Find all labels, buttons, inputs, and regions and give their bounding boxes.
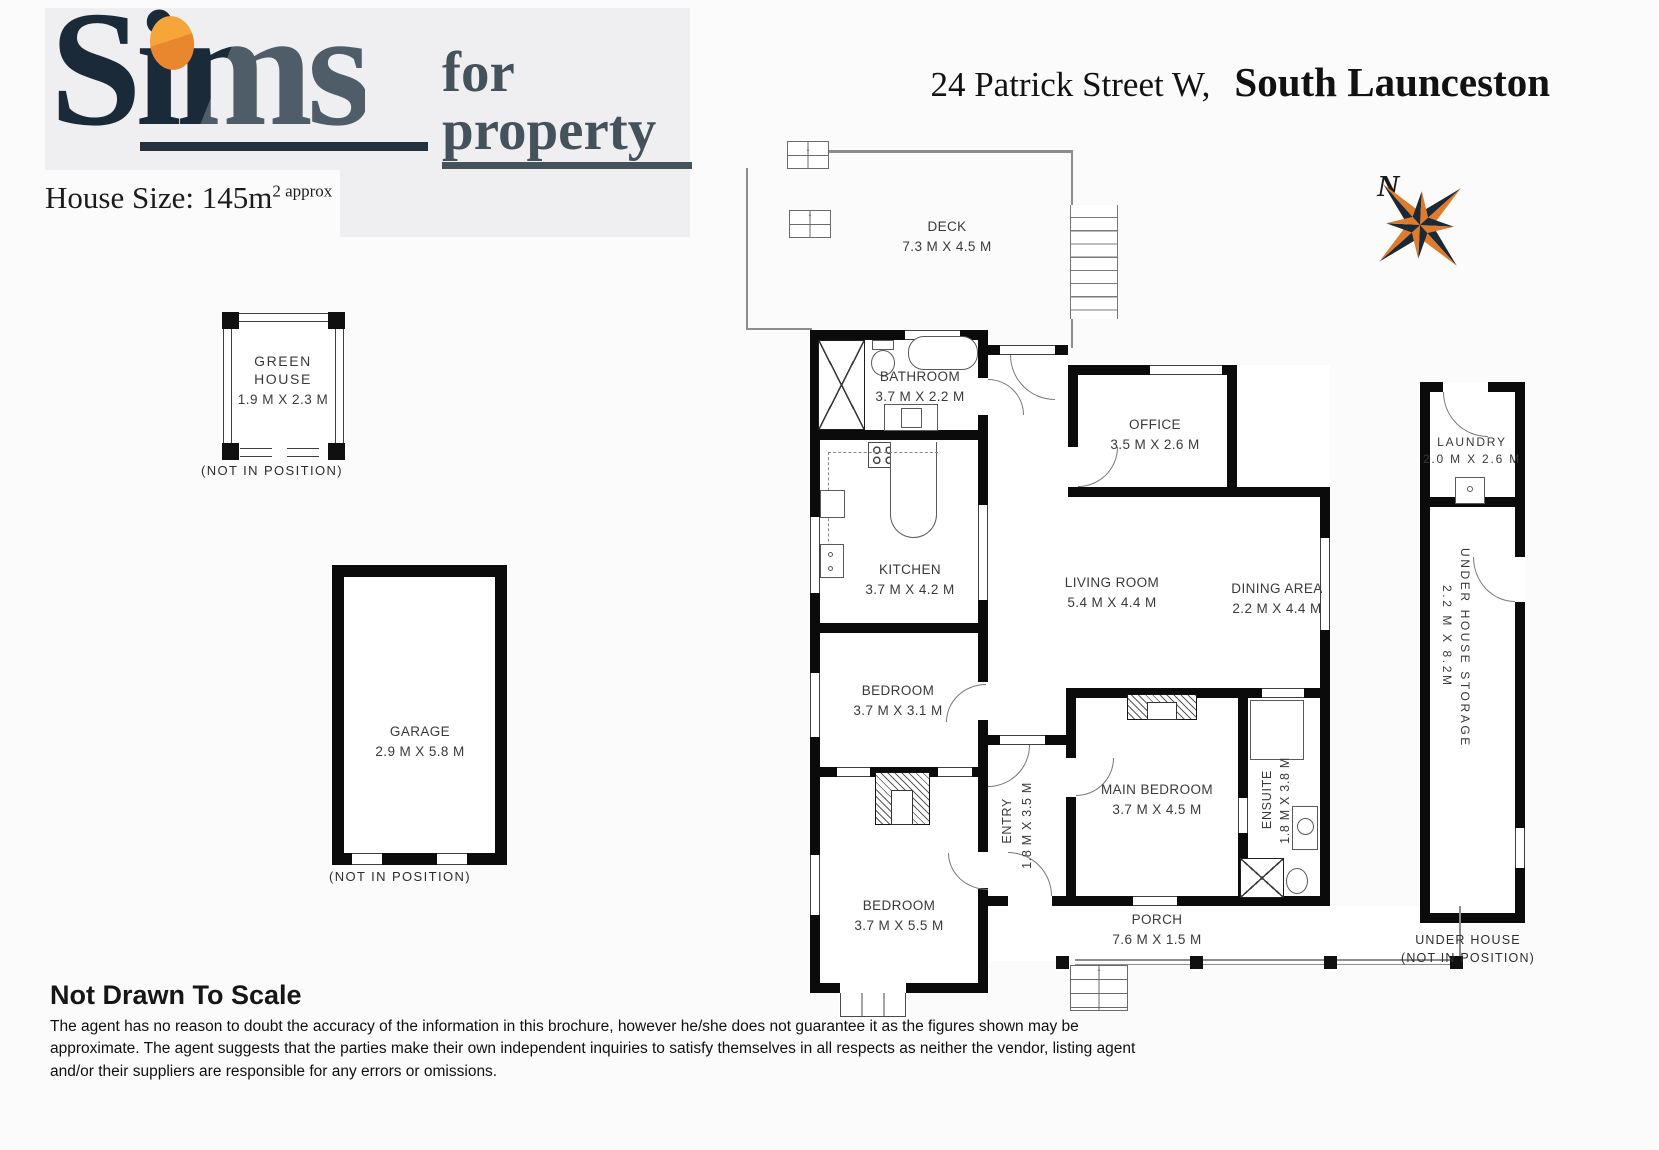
porch-post xyxy=(328,312,345,329)
room-label-storage-dims: 2.2 M X 8.2M xyxy=(1440,585,1454,688)
house-size-superscript: 2 approx xyxy=(272,182,332,201)
window xyxy=(1238,798,1248,833)
window xyxy=(239,313,328,322)
window xyxy=(1000,345,1055,355)
room-name: BEDROOM xyxy=(854,896,943,916)
room-name: GARAGE xyxy=(375,722,464,742)
window xyxy=(240,448,272,457)
window xyxy=(437,853,467,865)
steps-icon: ↑ xyxy=(1070,965,1128,1011)
logo-background xyxy=(340,170,690,237)
room-dims: 2.9 M X 5.8 M xyxy=(375,742,464,762)
room-name: OFFICE xyxy=(1110,415,1199,435)
deck-edge xyxy=(803,150,1073,153)
door-opening xyxy=(1066,758,1076,797)
window xyxy=(223,329,232,443)
fixture xyxy=(1286,868,1308,894)
logo-underline xyxy=(140,142,428,151)
compass-rose-icon: N xyxy=(1325,150,1505,300)
wall-segment xyxy=(810,623,988,633)
fixture xyxy=(1297,818,1314,835)
steps-icon: ↑ xyxy=(789,210,831,238)
fixture xyxy=(828,552,833,557)
room-dims: 3.7 M X 2.2 M xyxy=(875,387,964,407)
door-opening xyxy=(978,378,988,415)
window xyxy=(810,855,820,915)
room-label-dining-area: DINING AREA 2.2 M X 4.4 M xyxy=(1231,579,1322,618)
room-label-entry-name: ENTRY xyxy=(1000,798,1014,844)
room-name: DINING AREA xyxy=(1231,579,1322,599)
room-label-greenhouse: GREEN HOUSE 1.9 M X 2.3 M xyxy=(238,352,329,409)
window xyxy=(1000,735,1045,745)
room-label-deck: DECK 7.3 M X 4.5 M xyxy=(902,217,991,256)
wall-segment xyxy=(495,565,507,865)
room-dims: 3.7 M X 4.5 M xyxy=(1101,800,1213,820)
logo-for-text: for xyxy=(442,44,515,101)
room-label-living-room: LIVING ROOM 5.4 M X 4.4 M xyxy=(1065,573,1159,612)
kitchen-island xyxy=(890,442,937,538)
room-dims: 2.0 M X 2.6 M xyxy=(1423,451,1521,468)
porch-post xyxy=(1324,956,1337,969)
room-label-main-bedroom: MAIN BEDROOM 3.7 M X 4.5 M xyxy=(1101,780,1213,819)
room-name: MAIN BEDROOM xyxy=(1101,780,1213,800)
wall-segment xyxy=(332,565,507,577)
room-dims: 3.7 M X 3.1 M xyxy=(853,701,942,721)
window xyxy=(287,448,319,457)
window xyxy=(335,329,344,443)
wall-segment xyxy=(1066,688,1076,906)
room-label-kitchen: KITCHEN 3.7 M X 4.2 M xyxy=(865,560,954,599)
house-size-text: House Size: 145m2 approx xyxy=(45,180,332,216)
bathtub xyxy=(908,336,978,370)
room-label-bathroom: BATHROOM 3.7 M X 2.2 M xyxy=(875,367,964,406)
garage-caption: (NOT IN POSITION) xyxy=(329,868,471,886)
room-label-laundry: LAUNDRY 2.0 M X 2.6 M xyxy=(1423,434,1521,469)
caption-line: UNDER HOUSE xyxy=(1401,932,1535,950)
wall-segment xyxy=(810,430,988,440)
bay-window xyxy=(840,993,906,1017)
shower xyxy=(1240,858,1284,898)
room-dims: 3.5 M X 2.6 M xyxy=(1110,435,1199,455)
steps-icon: ↓ xyxy=(787,141,829,169)
wall-segment xyxy=(1068,487,1330,497)
room-label-bedroom-1: BEDROOM 3.7 M X 3.1 M xyxy=(853,681,942,720)
house-size-value: House Size: 145m xyxy=(45,180,272,215)
window xyxy=(810,673,820,737)
room-label-office: OFFICE 3.5 M X 2.6 M xyxy=(1110,415,1199,454)
room-dims: 7.6 M X 1.5 M xyxy=(1112,930,1201,950)
wall-segment xyxy=(1238,688,1248,798)
under-house-caption: UNDER HOUSE (NOT IN POSITION) xyxy=(1401,932,1535,967)
room-name: BATHROOM xyxy=(875,367,964,387)
window xyxy=(1515,828,1525,868)
window xyxy=(978,505,988,600)
room-name: LIVING ROOM xyxy=(1065,573,1159,593)
fixture xyxy=(872,340,894,350)
room-label-porch: PORCH 7.6 M X 1.5 M xyxy=(1112,910,1201,949)
fixture xyxy=(820,490,845,518)
shower xyxy=(818,340,865,430)
logo-property-text: property xyxy=(442,102,656,159)
counter-outline xyxy=(828,452,938,454)
door-opening xyxy=(1068,447,1078,487)
window xyxy=(1133,896,1177,906)
room-dims: 1.9 M X 2.3 M xyxy=(238,388,329,409)
greenhouse-caption: (NOT IN POSITION) xyxy=(201,462,343,480)
room-label-storage-name: UNDER HOUSE STORAGE xyxy=(1458,548,1472,748)
room-name: GREEN xyxy=(238,352,329,370)
door-opening xyxy=(1008,896,1052,906)
porch-post xyxy=(1190,956,1203,969)
room-label-ensuite-name: ENSUITE xyxy=(1260,770,1274,829)
room-dims: 7.3 M X 4.5 M xyxy=(902,237,991,257)
fixture xyxy=(1250,700,1304,760)
fixture xyxy=(901,408,922,428)
porch-post xyxy=(328,443,345,460)
room-dims: 3.7 M X 4.2 M xyxy=(865,580,954,600)
porch-post xyxy=(222,443,239,460)
window xyxy=(810,517,820,593)
fixture xyxy=(828,566,833,571)
disclaimer-text: The agent has no reason to doubt the acc… xyxy=(50,1016,1165,1083)
not-drawn-to-scale-title: Not Drawn To Scale xyxy=(50,980,302,1011)
room-dims: 3.7 M X 5.5 M xyxy=(854,916,943,936)
porch-post xyxy=(1056,956,1069,969)
room-name: HOUSE xyxy=(238,370,329,388)
logo-underline xyxy=(442,162,692,169)
room-label-bedroom-2: BEDROOM 3.7 M X 5.5 M xyxy=(854,896,943,935)
room-name: KITCHEN xyxy=(865,560,954,580)
wall-segment xyxy=(1420,913,1525,923)
address-street: 24 Patrick Street W, xyxy=(930,65,1210,104)
wall-segment xyxy=(1227,365,1237,497)
room-interior xyxy=(988,906,1460,961)
floorplan-page: Sims for property House Size: 145m2 appr… xyxy=(0,0,1659,1150)
window xyxy=(837,767,870,777)
door-opening xyxy=(1515,557,1525,602)
wall-segment xyxy=(332,565,344,865)
room-name: PORCH xyxy=(1112,910,1201,930)
address-suburb: South Launceston xyxy=(1234,59,1550,105)
room-name: LAUNDRY xyxy=(1423,434,1521,451)
staircase-icon xyxy=(1070,205,1118,319)
property-address: 24 Patrick Street W,South Launceston xyxy=(750,58,1550,106)
logo-sims-wordmark: Sims xyxy=(50,0,365,151)
wall-segment xyxy=(978,433,988,505)
fixture xyxy=(820,544,844,578)
window xyxy=(1262,688,1304,698)
caption-line: (NOT IN POSITION) xyxy=(1401,950,1535,968)
fireplace-inner xyxy=(891,790,913,825)
deck-edge xyxy=(746,328,812,330)
room-interior xyxy=(332,565,507,865)
fireplace-inner xyxy=(1147,702,1177,720)
fixture xyxy=(1467,486,1473,492)
room-name: DECK xyxy=(902,217,991,237)
room-label-ensuite-dims: 1.8 M X 3.8 M xyxy=(1278,757,1292,844)
room-label-entry-dims: 1.8 M X 3.5 M xyxy=(1020,782,1034,869)
door-opening xyxy=(840,983,906,993)
door-opening xyxy=(1443,382,1488,392)
room-name: BEDROOM xyxy=(853,681,942,701)
porch-post xyxy=(222,312,239,329)
window xyxy=(1150,365,1222,375)
window xyxy=(938,767,972,777)
room-dims: 5.4 M X 4.4 M xyxy=(1065,593,1159,613)
window xyxy=(352,853,382,865)
room-label-garage: GARAGE 2.9 M X 5.8 M xyxy=(375,722,464,761)
deck-edge xyxy=(746,168,748,330)
room-dims: 2.2 M X 4.4 M xyxy=(1231,599,1322,619)
